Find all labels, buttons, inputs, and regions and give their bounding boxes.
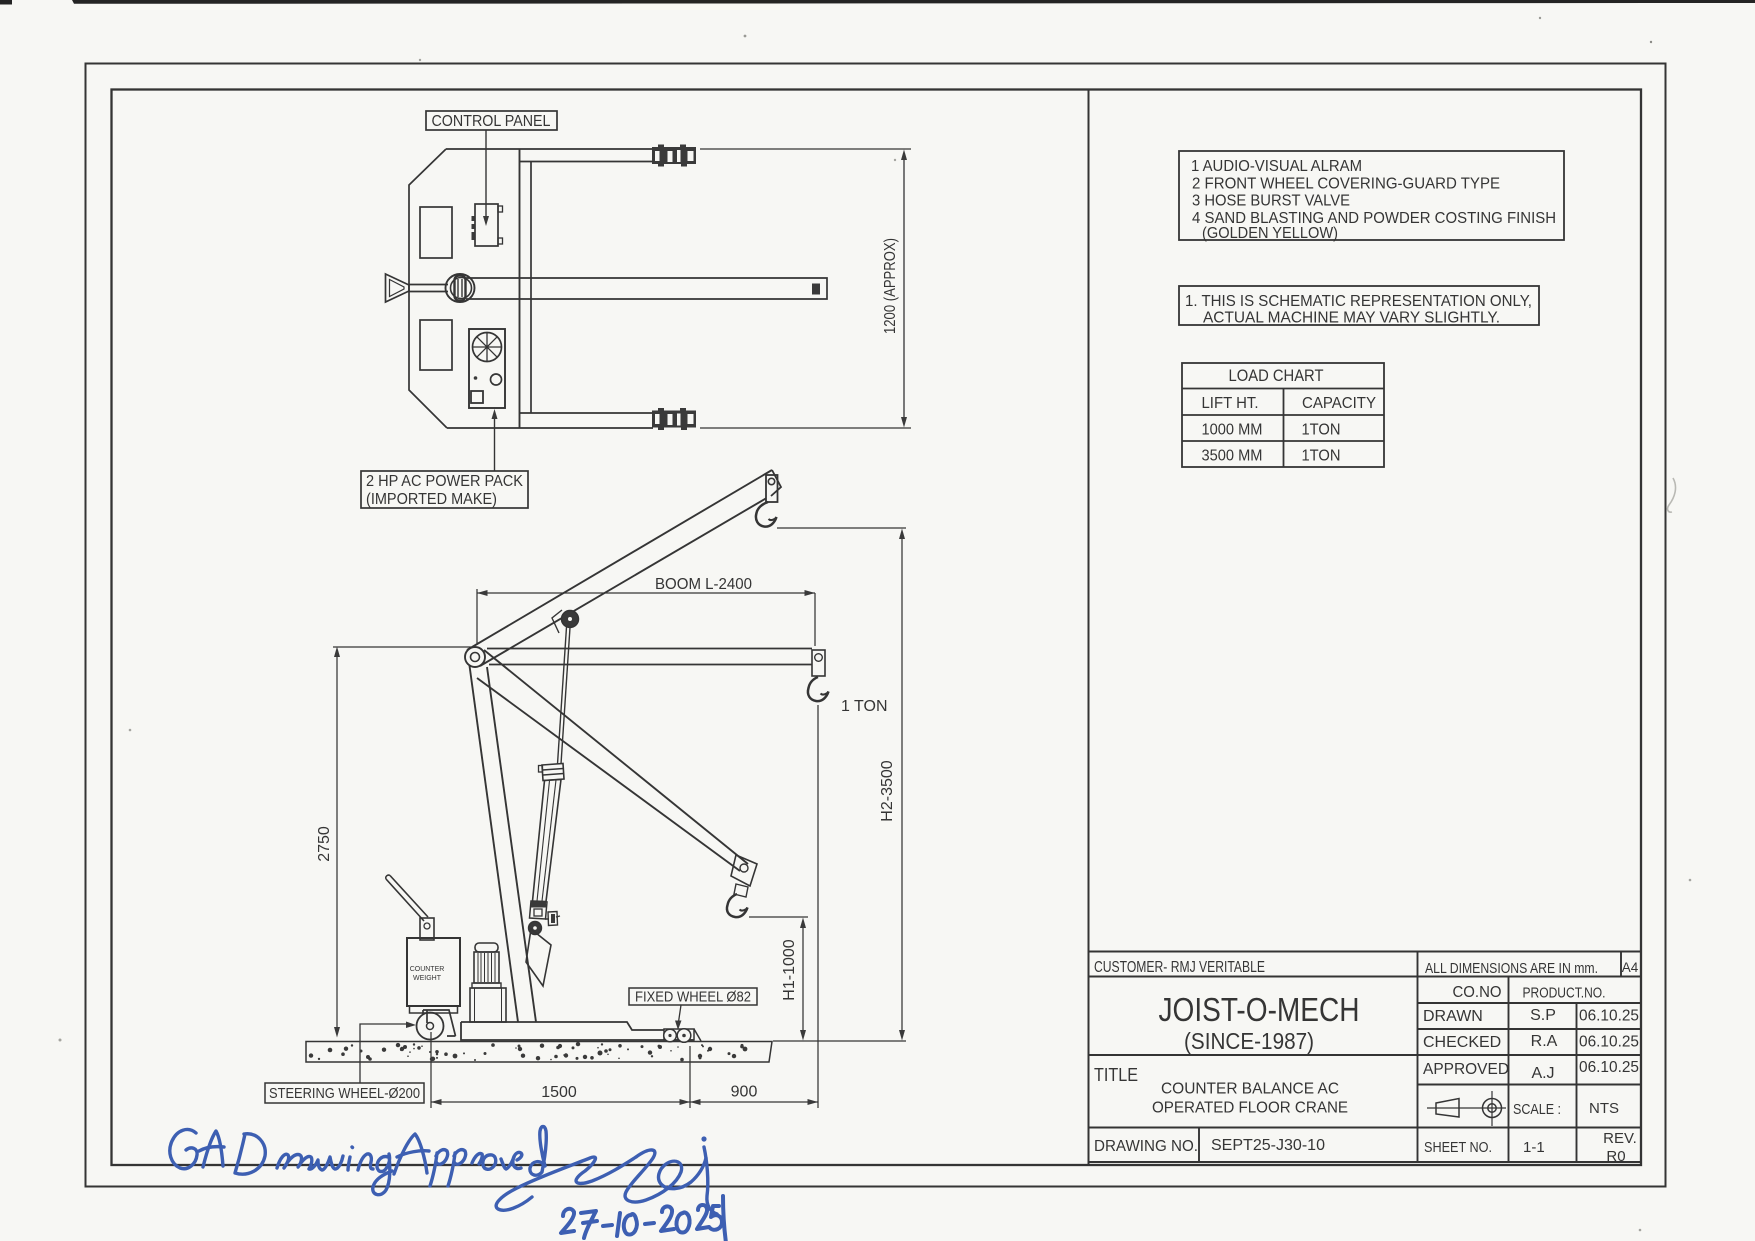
svg-text:CO.NO: CO.NO [1453, 984, 1502, 1001]
svg-text:SEPT25-J30-10: SEPT25-J30-10 [1211, 1137, 1325, 1154]
svg-text:BOOM L-2400: BOOM L-2400 [655, 576, 752, 593]
svg-text:COUNTER: COUNTER [410, 966, 445, 973]
svg-text:1500: 1500 [541, 1084, 577, 1101]
svg-text:LOAD CHART: LOAD CHART [1229, 366, 1324, 385]
svg-text:CONTROL PANEL: CONTROL PANEL [432, 113, 551, 130]
svg-text:NTS: NTS [1589, 1100, 1619, 1117]
svg-text:3500 MM: 3500 MM [1202, 448, 1263, 465]
svg-text:R0: R0 [1606, 1148, 1625, 1165]
svg-text:CAPACITY: CAPACITY [1302, 395, 1376, 412]
svg-text:SCALE :: SCALE : [1513, 1101, 1561, 1118]
svg-text:FIXED WHEEL Ø82: FIXED WHEEL Ø82 [635, 989, 751, 1006]
svg-text:900: 900 [731, 1084, 758, 1101]
svg-text:1. THIS IS SCHEMATIC REPRESENT: 1. THIS IS SCHEMATIC REPRESENTATION ONLY… [1185, 293, 1532, 310]
svg-text:A.J: A.J [1531, 1065, 1554, 1082]
svg-text:3 HOSE BURST VALVE: 3 HOSE BURST VALVE [1192, 193, 1350, 210]
svg-text:H1-1000: H1-1000 [781, 939, 798, 1000]
svg-text:DRAWING NO.: DRAWING NO. [1094, 1138, 1198, 1155]
svg-text:STEERING WHEEL-Ø200: STEERING WHEEL-Ø200 [269, 1085, 420, 1102]
svg-text:S.P: S.P [1530, 1007, 1556, 1024]
svg-text:R.A: R.A [1531, 1033, 1558, 1050]
svg-text:A4: A4 [1622, 960, 1639, 975]
svg-text:06.10.25: 06.10.25 [1579, 1008, 1639, 1025]
svg-text:WEIGHT: WEIGHT [413, 975, 442, 982]
svg-text:1200 (APPROX): 1200 (APPROX) [882, 238, 899, 334]
svg-text:DRAWN: DRAWN [1423, 1008, 1483, 1025]
svg-text:H2-3500: H2-3500 [879, 760, 896, 821]
svg-text:OPERATED FLOOR CRANE: OPERATED FLOOR CRANE [1152, 1100, 1348, 1117]
svg-text:PRODUCT.NO.: PRODUCT.NO. [1523, 986, 1606, 1002]
svg-text:1 TON: 1 TON [841, 698, 888, 715]
svg-text:06.10.25: 06.10.25 [1579, 1034, 1639, 1051]
svg-text:COUNTER BALANCE AC: COUNTER BALANCE AC [1161, 1081, 1339, 1098]
svg-text:1000 MM: 1000 MM [1202, 422, 1263, 439]
svg-text:SHEET NO.: SHEET NO. [1424, 1139, 1492, 1156]
svg-text:(IMPORTED MAKE): (IMPORTED MAKE) [366, 491, 497, 508]
svg-text:(SINCE-1987): (SINCE-1987) [1184, 1028, 1314, 1054]
svg-text:1 AUDIO-VISUAL ALRAM: 1 AUDIO-VISUAL ALRAM [1191, 158, 1362, 175]
svg-text:2750: 2750 [316, 826, 333, 862]
svg-text:APPROVED: APPROVED [1423, 1061, 1509, 1078]
svg-text:LIFT HT.: LIFT HT. [1202, 395, 1259, 412]
svg-text:REV.: REV. [1603, 1130, 1637, 1147]
svg-text:ACTUAL MACHINE MAY VARY SLIGH: ACTUAL MACHINE MAY VARY SLIGHTLY. [1203, 310, 1500, 327]
svg-text:1-1: 1-1 [1523, 1139, 1545, 1156]
svg-text:2 HP AC POWER PACK: 2 HP AC POWER PACK [366, 473, 524, 490]
svg-text:1TON: 1TON [1302, 422, 1341, 439]
svg-text:CHECKED: CHECKED [1423, 1034, 1501, 1051]
svg-text:(GOLDEN YELLOW): (GOLDEN YELLOW) [1202, 225, 1338, 242]
svg-text:TITLE: TITLE [1094, 1065, 1138, 1085]
svg-text:ALL DIMENSIONS ARE IN mm.: ALL DIMENSIONS ARE IN mm. [1425, 960, 1598, 977]
svg-text:2 FRONT WHEEL COVERING-GUARD T: 2 FRONT WHEEL COVERING-GUARD TYPE [1192, 176, 1500, 193]
svg-text:JOIST-O-MECH: JOIST-O-MECH [1159, 991, 1360, 1028]
svg-text:1TON: 1TON [1302, 448, 1341, 465]
svg-text:06.10.25: 06.10.25 [1579, 1059, 1639, 1076]
svg-text:CUSTOMER- RMJ VERITABLE: CUSTOMER- RMJ VERITABLE [1094, 959, 1265, 976]
